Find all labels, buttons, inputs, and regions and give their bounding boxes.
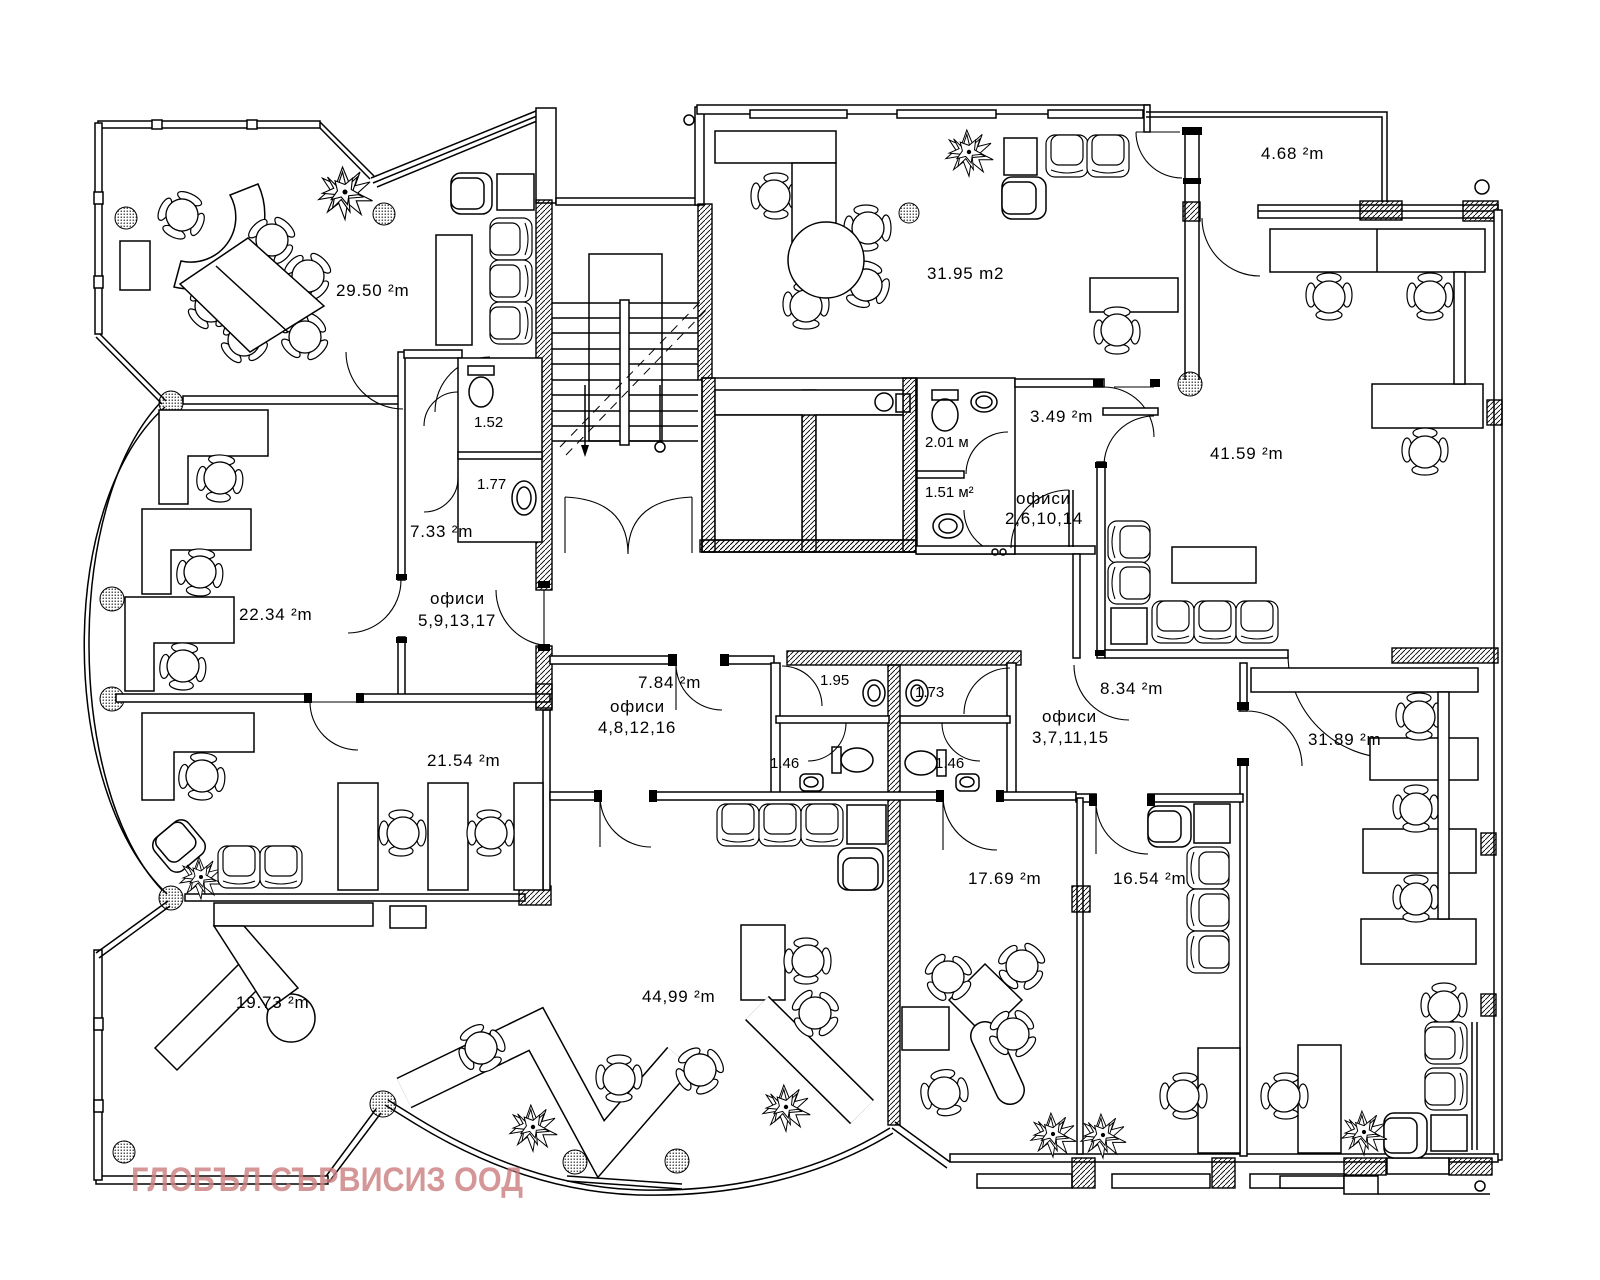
svg-text:1.73: 1.73 [915, 684, 944, 701]
svg-text:29.50 ²m: 29.50 ²m [336, 281, 410, 300]
svg-text:2,6,10,14: 2,6,10,14 [1005, 509, 1083, 528]
svg-text:офиси: офиси [1042, 707, 1097, 726]
svg-text:1.46: 1.46 [770, 755, 799, 772]
svg-text:8.34 ²m: 8.34 ²m [1100, 679, 1163, 698]
svg-text:офиси: офиси [430, 589, 485, 608]
svg-text:16.54 ²m: 16.54 ²m [1113, 869, 1187, 888]
svg-text:2.01 м: 2.01 м [925, 434, 969, 451]
svg-text:офиси: офиси [1016, 489, 1071, 508]
svg-text:офиси: офиси [610, 697, 665, 716]
svg-text:ГЛОБЪЛ СЪРВИСИЗ ООД: ГЛОБЪЛ СЪРВИСИЗ ООД [131, 1161, 523, 1199]
svg-text:5,9,13,17: 5,9,13,17 [418, 611, 496, 630]
svg-text:44,99 ²m: 44,99 ²m [642, 987, 716, 1006]
svg-text:1.52: 1.52 [474, 414, 503, 431]
svg-text:1.46: 1.46 [935, 755, 964, 772]
svg-text:4,8,12,16: 4,8,12,16 [598, 718, 676, 737]
svg-text:1.77: 1.77 [477, 476, 506, 493]
svg-text:3,7,11,15: 3,7,11,15 [1032, 728, 1109, 747]
svg-text:22.34 ²m: 22.34 ²m [239, 605, 313, 624]
svg-text:7.33 ²m: 7.33 ²m [410, 522, 473, 541]
svg-text:31.89 ²m: 31.89 ²m [1308, 730, 1382, 749]
svg-text:3.49 ²m: 3.49 ²m [1030, 407, 1093, 426]
svg-text:4.68 ²m: 4.68 ²m [1261, 144, 1324, 163]
svg-text:7.84 ²m: 7.84 ²m [638, 673, 701, 692]
svg-text:17.69 ²m: 17.69 ²m [968, 869, 1042, 888]
svg-text:21.54 ²m: 21.54 ²m [427, 751, 501, 770]
svg-text:19.73 ²m: 19.73 ²m [236, 993, 310, 1012]
svg-text:1.51 м²: 1.51 м² [925, 484, 974, 501]
svg-text:1.95: 1.95 [820, 672, 849, 689]
svg-text:31.95 m2: 31.95 m2 [927, 264, 1004, 283]
svg-text:41.59 ²m: 41.59 ²m [1210, 444, 1284, 463]
